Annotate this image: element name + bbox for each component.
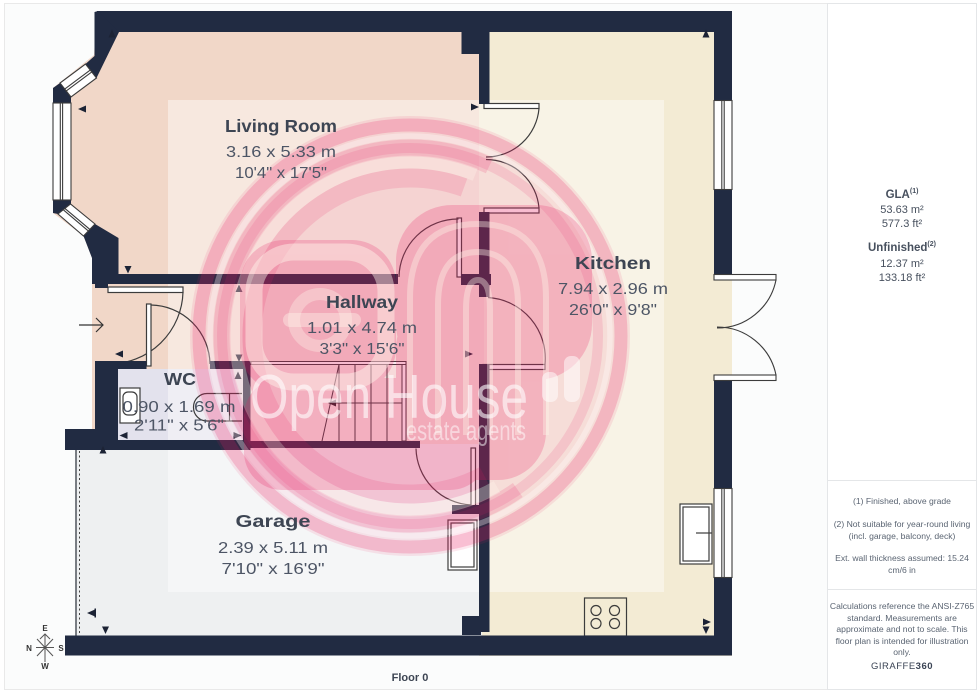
svg-text:7'10" x 16'9": 7'10" x 16'9" [222, 561, 325, 578]
svg-text:Hallway: Hallway [326, 292, 398, 312]
svg-text:S: S [58, 644, 64, 653]
svg-text:estate agents: estate agents [406, 415, 526, 446]
svg-text:26'0" x 9'8": 26'0" x 9'8" [569, 302, 657, 319]
svg-text:7.94 x 2.96 m: 7.94 x 2.96 m [558, 281, 668, 298]
svg-text:0.90 x 1.69 m: 0.90 x 1.69 m [123, 399, 236, 416]
svg-text:WC: WC [164, 369, 196, 389]
svg-text:3.16 x 5.33 m: 3.16 x 5.33 m [226, 144, 336, 161]
svg-text:Living Room: Living Room [225, 116, 337, 136]
svg-text:10'4" x 17'5": 10'4" x 17'5" [235, 165, 327, 182]
svg-text:Kitchen: Kitchen [575, 253, 651, 273]
svg-text:2.39 x 5.11 m: 2.39 x 5.11 m [218, 540, 328, 557]
svg-text:Floor 0: Floor 0 [392, 672, 429, 684]
svg-text:N: N [26, 644, 32, 653]
svg-text:E: E [42, 624, 48, 633]
svg-text:Garage: Garage [236, 511, 311, 531]
svg-text:2'11" x 5'6": 2'11" x 5'6" [134, 418, 224, 435]
svg-text:3'3" x 15'6": 3'3" x 15'6" [320, 341, 405, 358]
svg-text:W: W [41, 662, 49, 671]
svg-text:1.01 x 4.74 m: 1.01 x 4.74 m [307, 320, 417, 337]
